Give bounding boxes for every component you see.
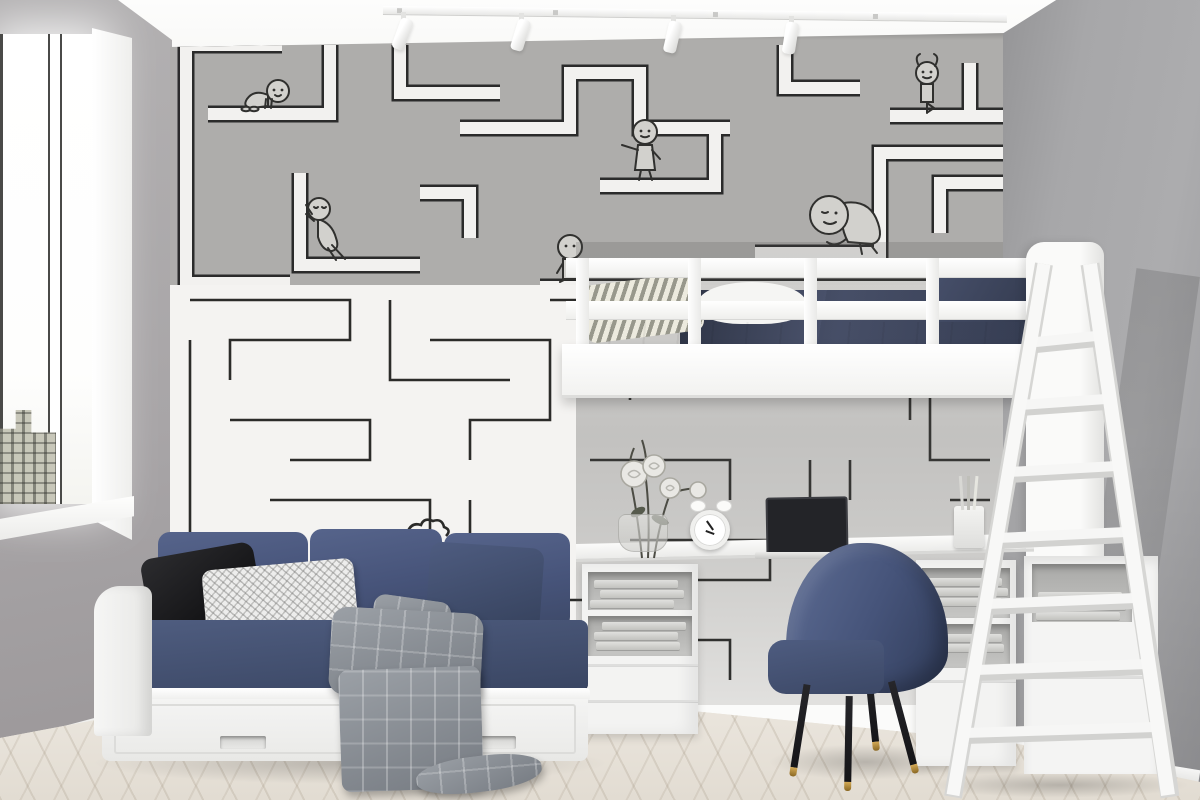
- guardrail-post: [804, 258, 817, 348]
- drawer-handle: [220, 736, 266, 749]
- pedestal-drawer-seam: [582, 664, 698, 666]
- pedestal-drawer-seam: [582, 700, 698, 702]
- track-connector: [713, 12, 718, 17]
- loft-bed-ladder: [900, 250, 1200, 800]
- alarm-clock: [688, 502, 734, 554]
- glass-vase: [618, 514, 668, 552]
- laptop-screen: [766, 496, 849, 554]
- window: [0, 28, 132, 558]
- room-scene: [0, 0, 1200, 800]
- desk-chair-seat: [768, 640, 884, 694]
- chair-leg: [844, 696, 852, 782]
- desk-pedestal-left: [582, 564, 698, 734]
- window-reveal: [92, 28, 132, 540]
- guardrail-post: [576, 258, 589, 348]
- sofa-armrest: [94, 586, 152, 736]
- shelf-niche: [588, 572, 692, 610]
- track-connector: [553, 10, 558, 15]
- track-connector: [873, 14, 878, 19]
- shelf-niche: [588, 616, 692, 656]
- clock-face: [690, 510, 730, 550]
- clock-bell: [716, 500, 732, 512]
- guardrail-post: [688, 258, 701, 348]
